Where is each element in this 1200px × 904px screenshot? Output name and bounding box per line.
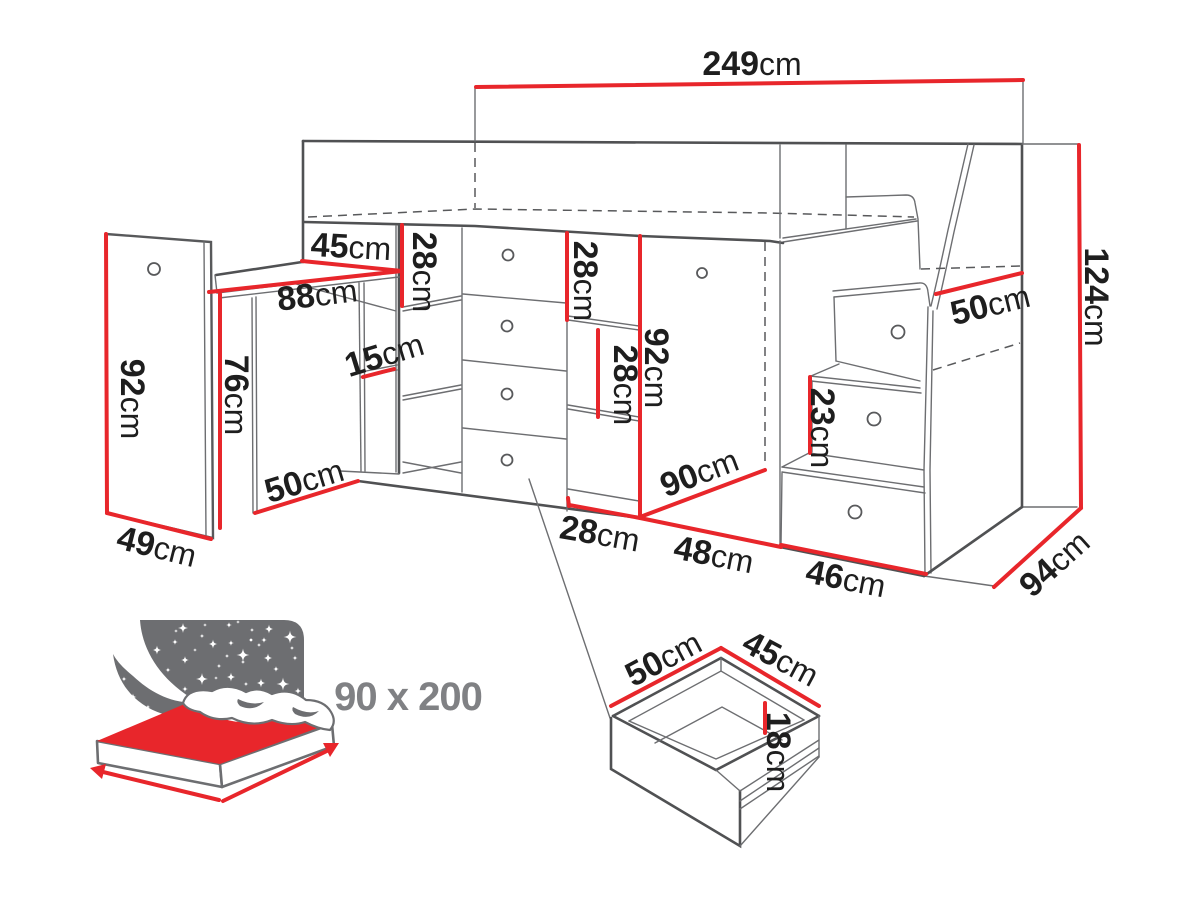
svg-text:92cm: 92cm [113, 359, 151, 439]
svg-text:76cm: 76cm [217, 355, 255, 435]
svg-text:23cm: 23cm [803, 388, 841, 468]
svg-text:90 x 200: 90 x 200 [334, 675, 482, 719]
svg-text:249cm: 249cm [702, 45, 801, 83]
svg-text:45cm: 45cm [310, 226, 392, 268]
svg-text:28cm: 28cm [566, 241, 604, 321]
svg-text:124cm: 124cm [1077, 247, 1115, 346]
svg-text:28cm: 28cm [606, 345, 644, 425]
svg-text:28cm: 28cm [405, 232, 443, 312]
svg-text:18cm: 18cm [759, 712, 797, 792]
